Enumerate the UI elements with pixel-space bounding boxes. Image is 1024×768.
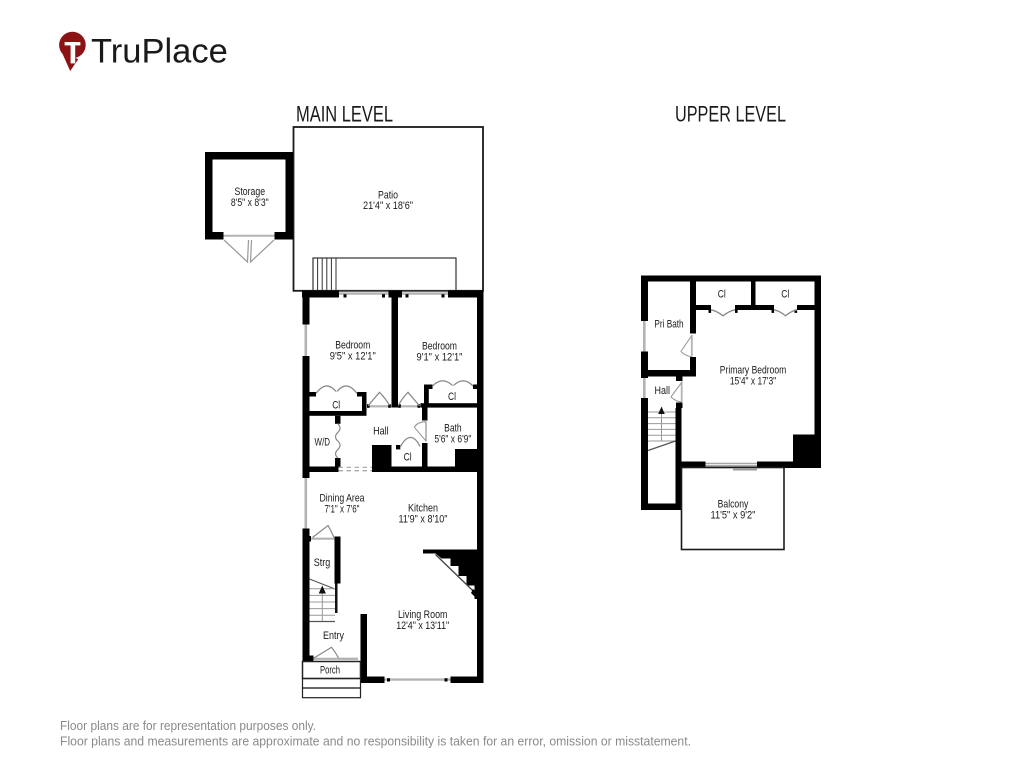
svg-text:Hall: Hall <box>373 425 389 437</box>
svg-text:11'9" x 8'10": 11'9" x 8'10" <box>399 513 448 525</box>
svg-text:8'5" x 8'3": 8'5" x 8'3" <box>231 197 269 209</box>
svg-text:12'4" x 13'11": 12'4" x 13'11" <box>396 620 449 632</box>
svg-text:21'4" x 18'6": 21'4" x 18'6" <box>363 200 413 212</box>
svg-text:15'4" x 17'3": 15'4" x 17'3" <box>730 375 776 387</box>
svg-text:Entry: Entry <box>323 630 344 642</box>
svg-text:UPPER LEVEL: UPPER LEVEL <box>675 101 786 126</box>
svg-text:Hall: Hall <box>655 385 671 397</box>
svg-text:Porch: Porch <box>320 664 340 676</box>
svg-text:Floor plans are for representa: Floor plans are for representation purpo… <box>60 719 316 733</box>
svg-text:TruPlace: TruPlace <box>91 32 228 70</box>
svg-text:7'1" x 7'6": 7'1" x 7'6" <box>325 503 360 515</box>
svg-text:W/D: W/D <box>315 436 331 448</box>
svg-text:9'1" x 12'1": 9'1" x 12'1" <box>417 351 463 363</box>
svg-text:9'5" x 12'1": 9'5" x 12'1" <box>330 350 376 362</box>
svg-text:Cl: Cl <box>448 391 456 403</box>
svg-text:Cl: Cl <box>781 289 789 301</box>
svg-text:11'5" x 9'2": 11'5" x 9'2" <box>711 509 756 521</box>
svg-text:Floor plans and measurements a: Floor plans and measurements are approxi… <box>60 735 691 749</box>
svg-text:Cl: Cl <box>332 399 340 411</box>
svg-text:Pri Bath: Pri Bath <box>654 318 683 330</box>
svg-text:Strg: Strg <box>314 557 331 569</box>
svg-text:MAIN LEVEL: MAIN LEVEL <box>296 101 393 126</box>
svg-text:Cl: Cl <box>718 289 726 301</box>
svg-text:Cl: Cl <box>404 452 412 464</box>
svg-text:5'6" x 6'9": 5'6" x 6'9" <box>434 433 471 445</box>
